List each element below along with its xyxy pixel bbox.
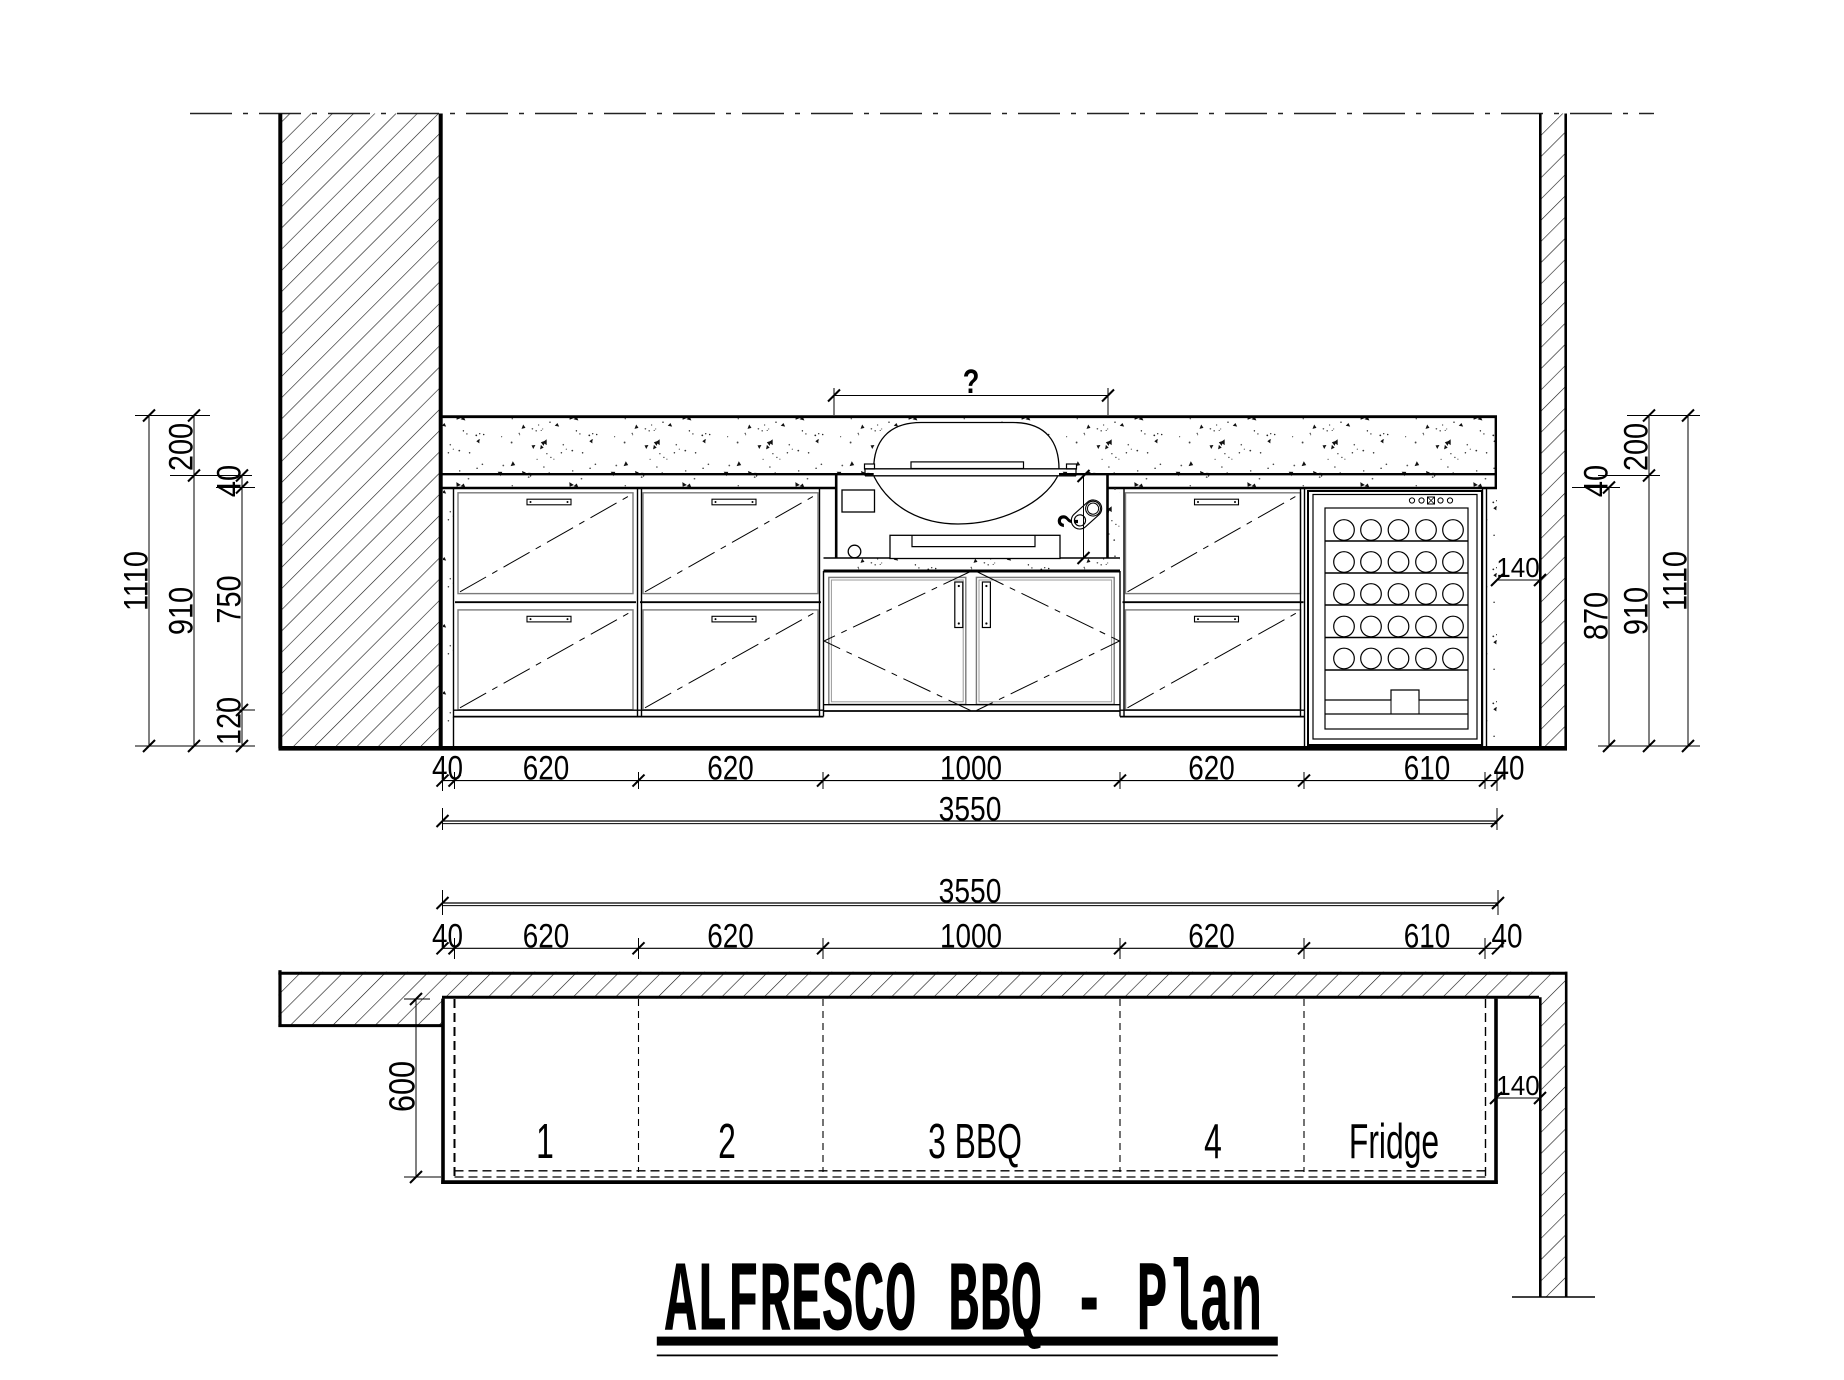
svg-text:1000: 1000 [940, 917, 1002, 955]
svg-text:1110: 1110 [116, 551, 155, 611]
svg-text:Fridge: Fridge [1349, 1114, 1439, 1169]
svg-text:40: 40 [1491, 917, 1522, 955]
svg-text:?: ? [963, 362, 980, 401]
svg-text:610: 610 [1404, 917, 1451, 955]
svg-text:140: 140 [1496, 552, 1539, 583]
svg-text:1000: 1000 [940, 749, 1002, 787]
svg-text:?: ? [1051, 514, 1084, 528]
svg-text:140: 140 [1496, 1070, 1539, 1101]
svg-text:3550: 3550 [939, 790, 1002, 828]
svg-text:3550: 3550 [939, 872, 1002, 910]
svg-text:40: 40 [1493, 749, 1524, 787]
svg-text:40: 40 [432, 749, 463, 787]
svg-text:620: 620 [707, 749, 754, 787]
svg-text:40: 40 [209, 465, 248, 497]
svg-text:620: 620 [523, 917, 570, 955]
svg-text:200: 200 [1616, 423, 1655, 471]
svg-text:610: 610 [1404, 749, 1451, 787]
svg-text:910: 910 [161, 587, 200, 635]
svg-text:1: 1 [536, 1114, 554, 1169]
svg-text:620: 620 [1188, 749, 1235, 787]
svg-text:620: 620 [523, 749, 570, 787]
svg-text:750: 750 [209, 575, 248, 623]
svg-text:200: 200 [161, 423, 200, 471]
svg-text:3 BBQ: 3 BBQ [928, 1114, 1022, 1169]
svg-text:620: 620 [707, 917, 754, 955]
svg-text:2: 2 [718, 1114, 736, 1169]
svg-text:870: 870 [1576, 592, 1615, 640]
svg-text:40: 40 [1576, 465, 1615, 497]
svg-text:4: 4 [1204, 1114, 1222, 1169]
svg-text:600: 600 [383, 1061, 423, 1112]
svg-text:910: 910 [1616, 587, 1655, 635]
svg-text:40: 40 [432, 917, 463, 955]
svg-text:620: 620 [1188, 917, 1235, 955]
svg-text:1110: 1110 [1655, 551, 1694, 611]
svg-text:120: 120 [209, 697, 248, 745]
